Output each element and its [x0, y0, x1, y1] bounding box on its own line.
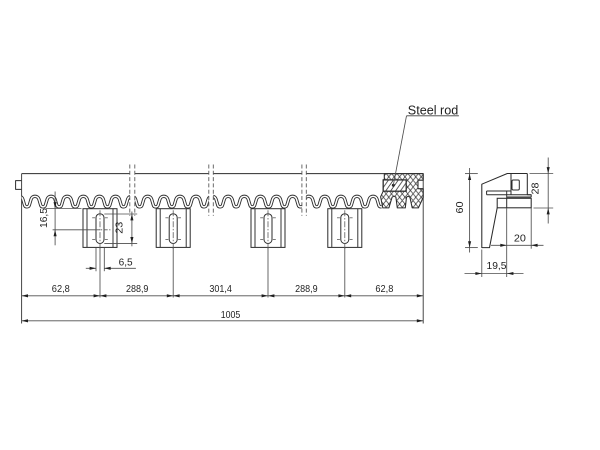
- svg-text:1005: 1005: [221, 309, 241, 321]
- svg-text:20: 20: [514, 232, 526, 244]
- svg-text:62,8: 62,8: [52, 283, 70, 295]
- svg-text:62,8: 62,8: [375, 283, 393, 295]
- svg-text:Steel rod: Steel rod: [408, 103, 459, 117]
- svg-text:60: 60: [454, 201, 466, 213]
- svg-text:301,4: 301,4: [209, 283, 232, 295]
- svg-text:23: 23: [113, 222, 125, 234]
- svg-text:6,5: 6,5: [119, 256, 133, 268]
- svg-text:288,9: 288,9: [295, 283, 318, 295]
- svg-text:288,9: 288,9: [126, 283, 149, 295]
- svg-text:16,5: 16,5: [38, 208, 50, 228]
- svg-text:19,5: 19,5: [487, 260, 507, 272]
- svg-text:28: 28: [529, 182, 541, 194]
